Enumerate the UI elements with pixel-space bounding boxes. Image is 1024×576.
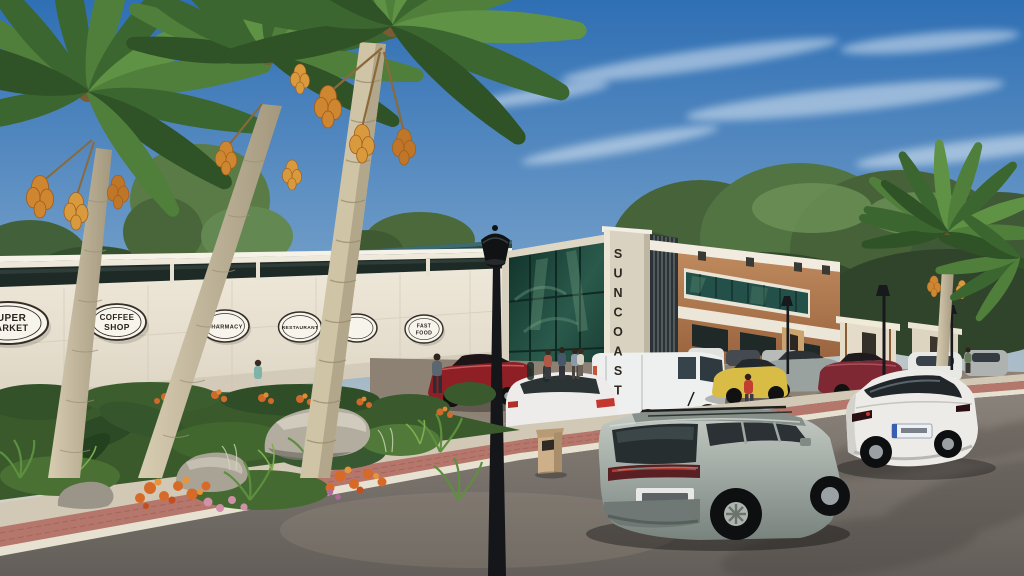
sign-text: COFFEE [100, 313, 135, 322]
sign-text: MARKET [0, 323, 29, 333]
sign-text: FOOD [416, 331, 433, 337]
rendering-canvas: SUPER MARKET COFFEE SHOP PHARMACY RESTAU… [0, 0, 1024, 576]
scene-svg: SUPER MARKET COFFEE SHOP PHARMACY RESTAU… [0, 0, 1024, 576]
right-wing [650, 240, 840, 368]
sign-text: FAST [417, 324, 431, 330]
tower-sign-text: SUNCOAST [611, 247, 635, 403]
sign-text: PHARMACY [207, 325, 243, 331]
sign-text: SHOP [104, 322, 130, 332]
sign-text: RESTAURANT [282, 325, 319, 331]
